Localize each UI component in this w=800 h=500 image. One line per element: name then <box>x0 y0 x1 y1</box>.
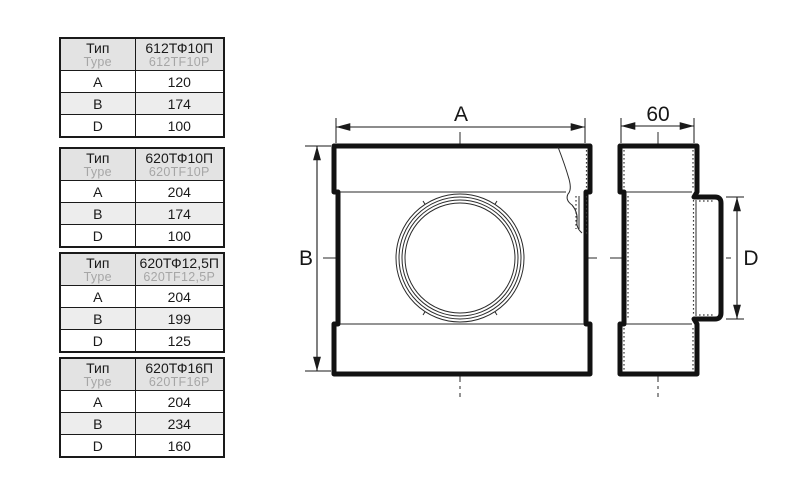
value-cell: 100 <box>135 225 224 248</box>
page: Тип Type 612ТФ10П 612TF10P A 120 B 174 D… <box>0 0 800 500</box>
dim-label-B: B <box>299 247 313 270</box>
dim-label-60: 60 <box>646 103 669 126</box>
table-row: A 204 <box>60 181 224 203</box>
model-header-cell: 620ТФ16П 620TF16P <box>135 358 224 391</box>
param-cell: B <box>60 203 135 225</box>
value-cell: 100 <box>135 115 224 138</box>
type-header-cell: Тип Type <box>60 148 135 181</box>
table-header-row: Тип Type 620ТФ16П 620TF16P <box>60 358 224 391</box>
model-label-ru: 612ТФ10П <box>136 41 224 56</box>
param-cell: A <box>60 286 135 308</box>
model-label-ru: 620ТФ12,5П <box>136 256 224 271</box>
value-cell: 120 <box>135 71 224 93</box>
value-cell: 174 <box>135 93 224 115</box>
value-cell: 199 <box>135 308 224 330</box>
table-row: D 160 <box>60 435 224 458</box>
value-cell: 234 <box>135 413 224 435</box>
type-label-en: Type <box>61 56 135 69</box>
spec-table-612tf10p: Тип Type 612ТФ10П 612TF10P A 120 B 174 D… <box>59 37 225 138</box>
param-cell: B <box>60 308 135 330</box>
type-header-cell: Тип Type <box>60 253 135 286</box>
type-header-cell: Тип Type <box>60 38 135 71</box>
type-label-en: Type <box>61 166 135 179</box>
table-row: D 100 <box>60 115 224 138</box>
spec-table-620tf12-5p: Тип Type 620ТФ12,5П 620TF12,5P A 204 B 1… <box>59 252 225 353</box>
value-cell: 174 <box>135 203 224 225</box>
type-label-en: Type <box>61 271 135 284</box>
param-cell: D <box>60 225 135 248</box>
spec-table-620tf16p: Тип Type 620ТФ16П 620TF16P A 204 B 234 D… <box>59 357 225 458</box>
table-row: B 234 <box>60 413 224 435</box>
front-view: A B <box>299 103 597 397</box>
table-row: D 100 <box>60 225 224 248</box>
param-cell: A <box>60 391 135 413</box>
table-row: A 204 <box>60 391 224 413</box>
param-cell: D <box>60 115 135 138</box>
technical-drawing: A B <box>285 95 775 415</box>
table-row: D 125 <box>60 330 224 353</box>
table-row: B 174 <box>60 93 224 115</box>
value-cell: 204 <box>135 181 224 203</box>
value-cell: 204 <box>135 391 224 413</box>
table-row: A 204 <box>60 286 224 308</box>
type-header-cell: Тип Type <box>60 358 135 391</box>
table-row: A 120 <box>60 71 224 93</box>
table-row: B 174 <box>60 203 224 225</box>
spec-table-620tf10p: Тип Type 620ТФ10П 620TF10P A 204 B 174 D… <box>59 147 225 248</box>
model-label-en: 620TF16P <box>136 376 224 389</box>
type-label-ru: Тип <box>61 256 135 271</box>
table-header-row: Тип Type 612ТФ10П 612TF10P <box>60 38 224 71</box>
model-header-cell: 612ТФ10П 612TF10P <box>135 38 224 71</box>
side-view-outline <box>620 146 721 374</box>
table-header-row: Тип Type 620ТФ10П 620TF10P <box>60 148 224 181</box>
table-row: B 199 <box>60 308 224 330</box>
type-label-en: Type <box>61 376 135 389</box>
dim-label-A: A <box>454 103 468 126</box>
param-cell: B <box>60 413 135 435</box>
value-cell: 125 <box>135 330 224 353</box>
param-cell: B <box>60 93 135 115</box>
model-label-en: 620TF10P <box>136 166 224 179</box>
side-view: 60 D <box>610 103 759 397</box>
table-header-row: Тип Type 620ТФ12,5П 620TF12,5P <box>60 253 224 286</box>
model-header-cell: 620ТФ12,5П 620TF12,5P <box>135 253 224 286</box>
model-label-ru: 620ТФ16П <box>136 361 224 376</box>
param-cell: A <box>60 71 135 93</box>
type-label-ru: Тип <box>61 151 135 166</box>
value-cell: 160 <box>135 435 224 458</box>
type-label-ru: Тип <box>61 41 135 56</box>
param-cell: D <box>60 435 135 458</box>
dim-label-D: D <box>743 247 758 270</box>
model-header-cell: 620ТФ10П 620TF10P <box>135 148 224 181</box>
model-label-ru: 620ТФ10П <box>136 151 224 166</box>
param-cell: A <box>60 181 135 203</box>
type-label-ru: Тип <box>61 361 135 376</box>
model-label-en: 612TF10P <box>136 56 224 69</box>
front-view-outline <box>334 146 590 374</box>
model-label-en: 620TF12,5P <box>136 271 224 284</box>
value-cell: 204 <box>135 286 224 308</box>
param-cell: D <box>60 330 135 353</box>
